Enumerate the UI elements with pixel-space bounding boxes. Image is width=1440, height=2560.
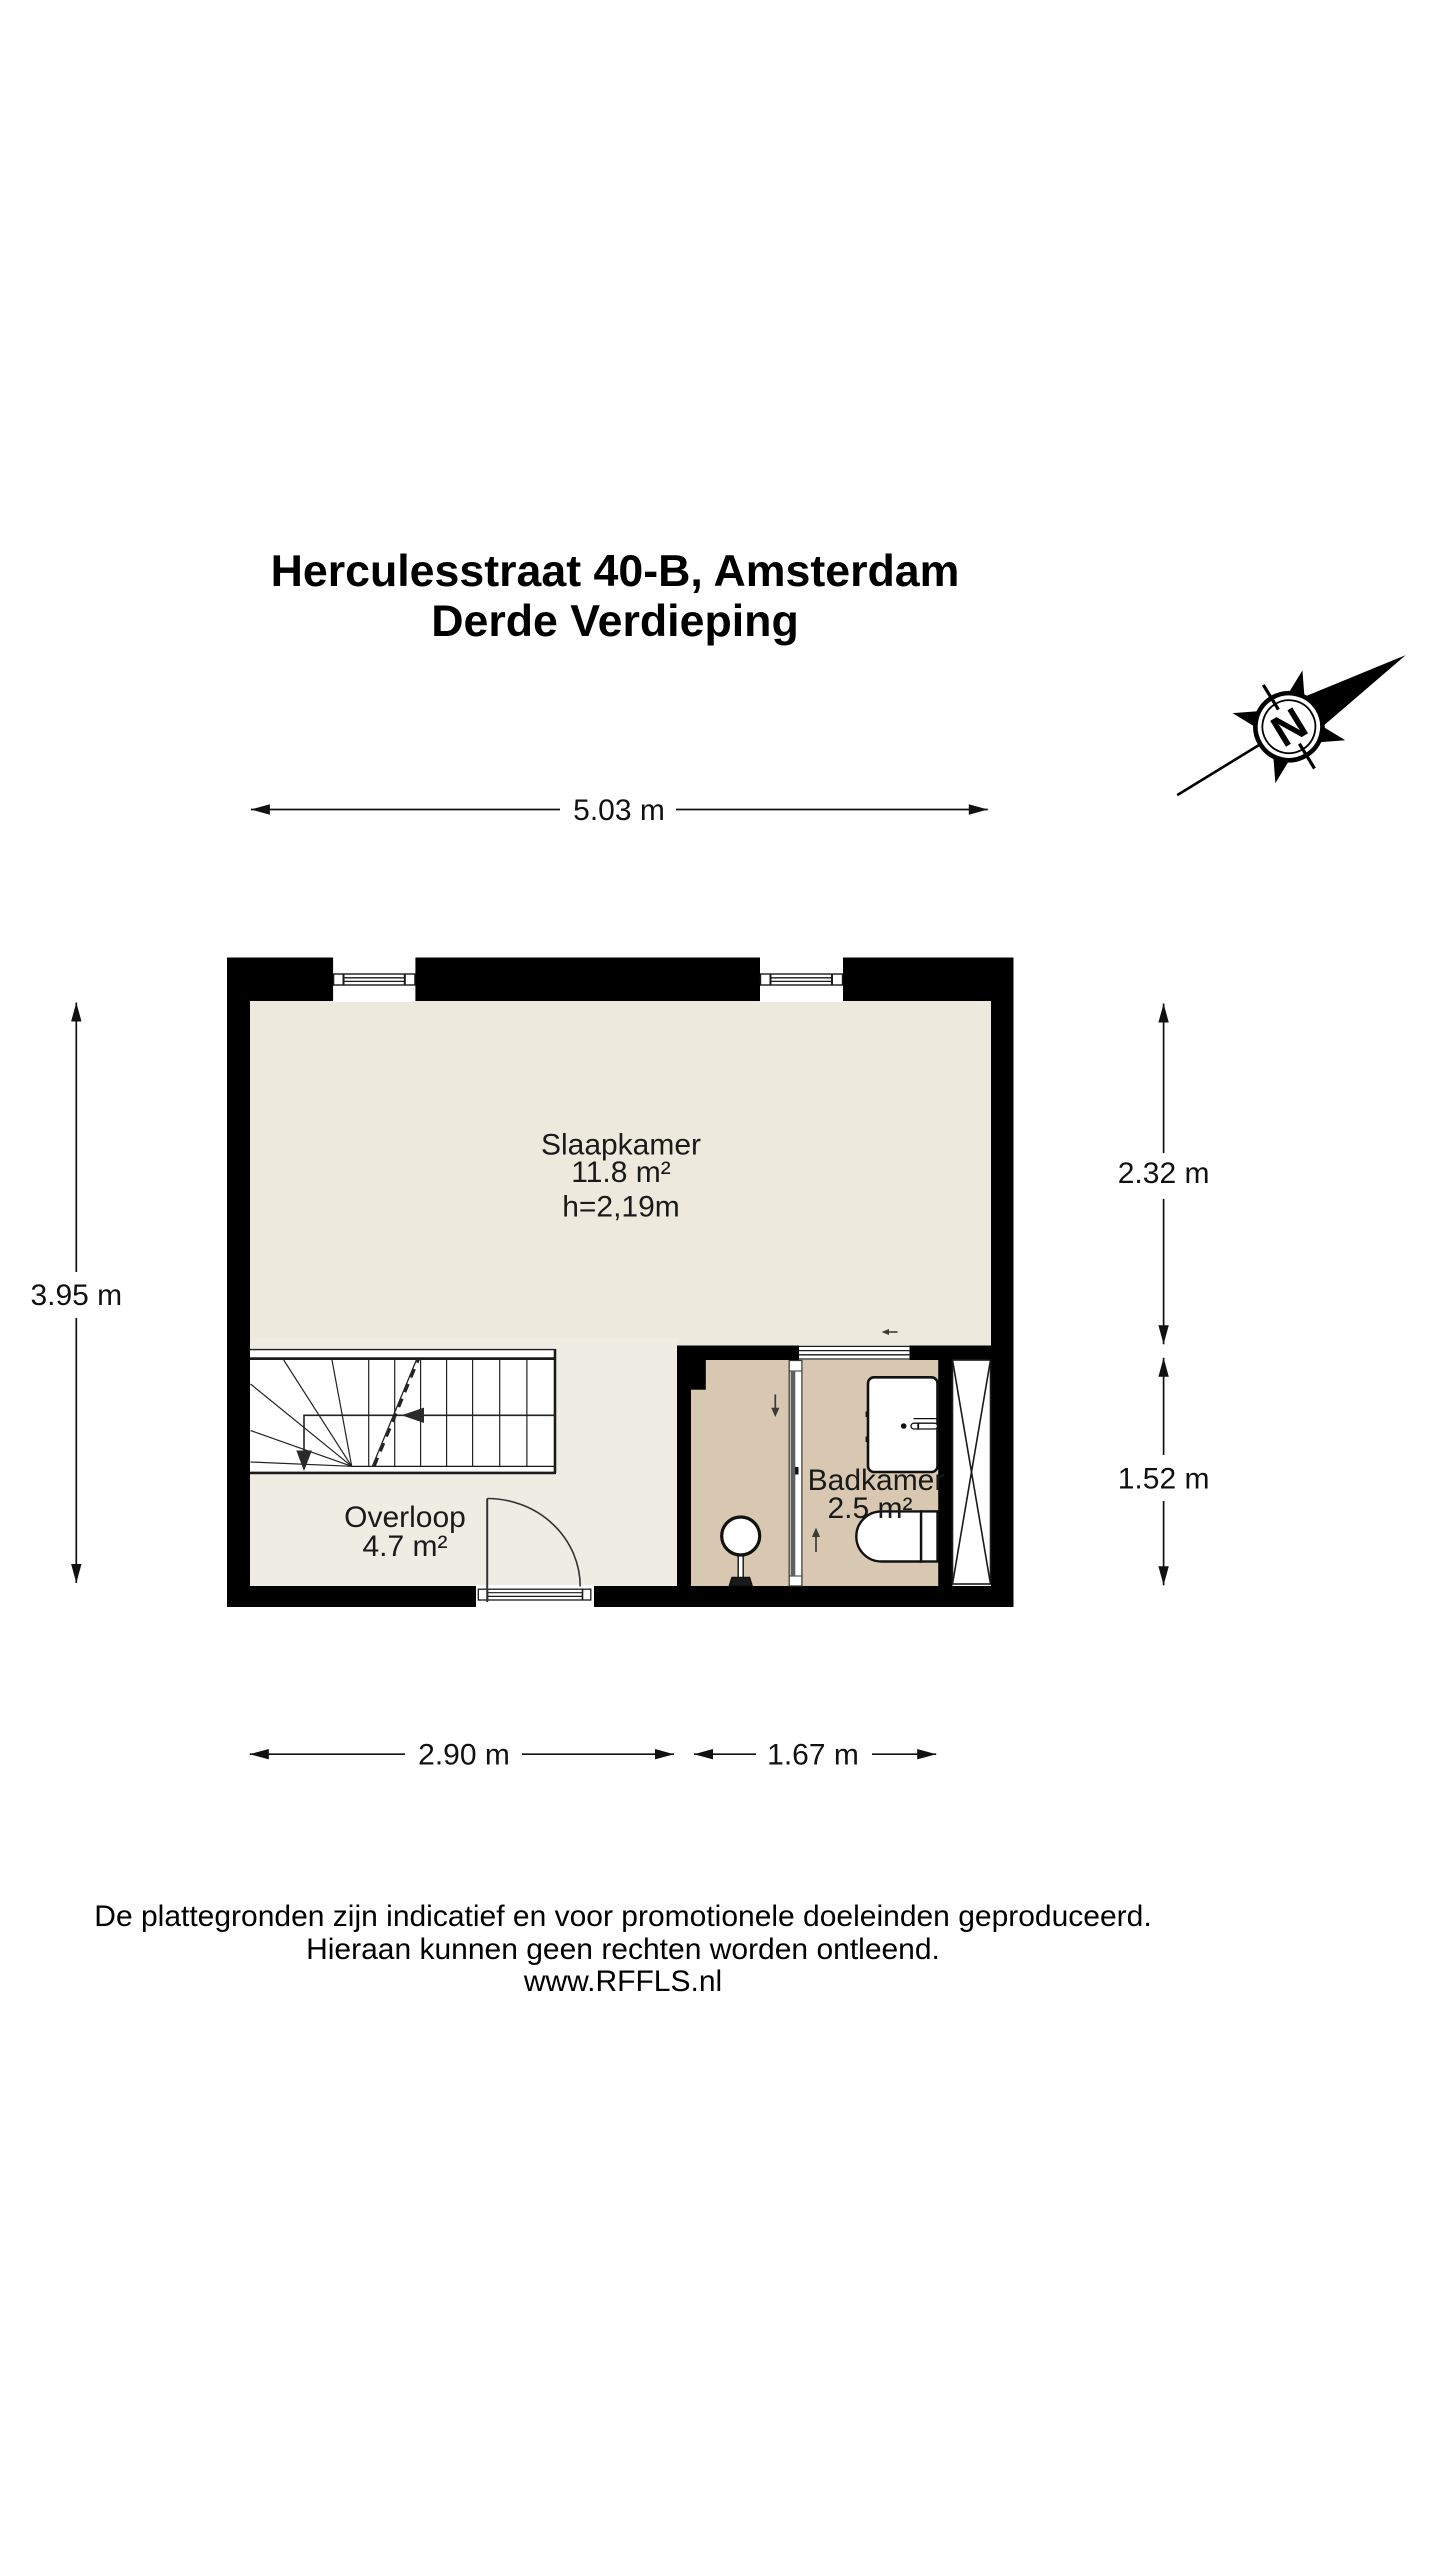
svg-text:h=2,19m: h=2,19m bbox=[562, 1191, 680, 1224]
svg-text:2.90 m: 2.90 m bbox=[418, 1739, 510, 1772]
svg-text:2.32 m: 2.32 m bbox=[1118, 1157, 1210, 1190]
svg-text:2.5 m²: 2.5 m² bbox=[827, 1492, 912, 1525]
svg-text:1.52 m: 1.52 m bbox=[1118, 1462, 1210, 1495]
svg-text:11.8 m²: 11.8 m² bbox=[571, 1156, 670, 1189]
svg-text:3.95 m: 3.95 m bbox=[30, 1279, 122, 1312]
svg-text:4.7 m²: 4.7 m² bbox=[362, 1530, 447, 1563]
svg-text:5.03 m: 5.03 m bbox=[573, 794, 665, 827]
svg-text:1.67 m: 1.67 m bbox=[767, 1739, 859, 1772]
